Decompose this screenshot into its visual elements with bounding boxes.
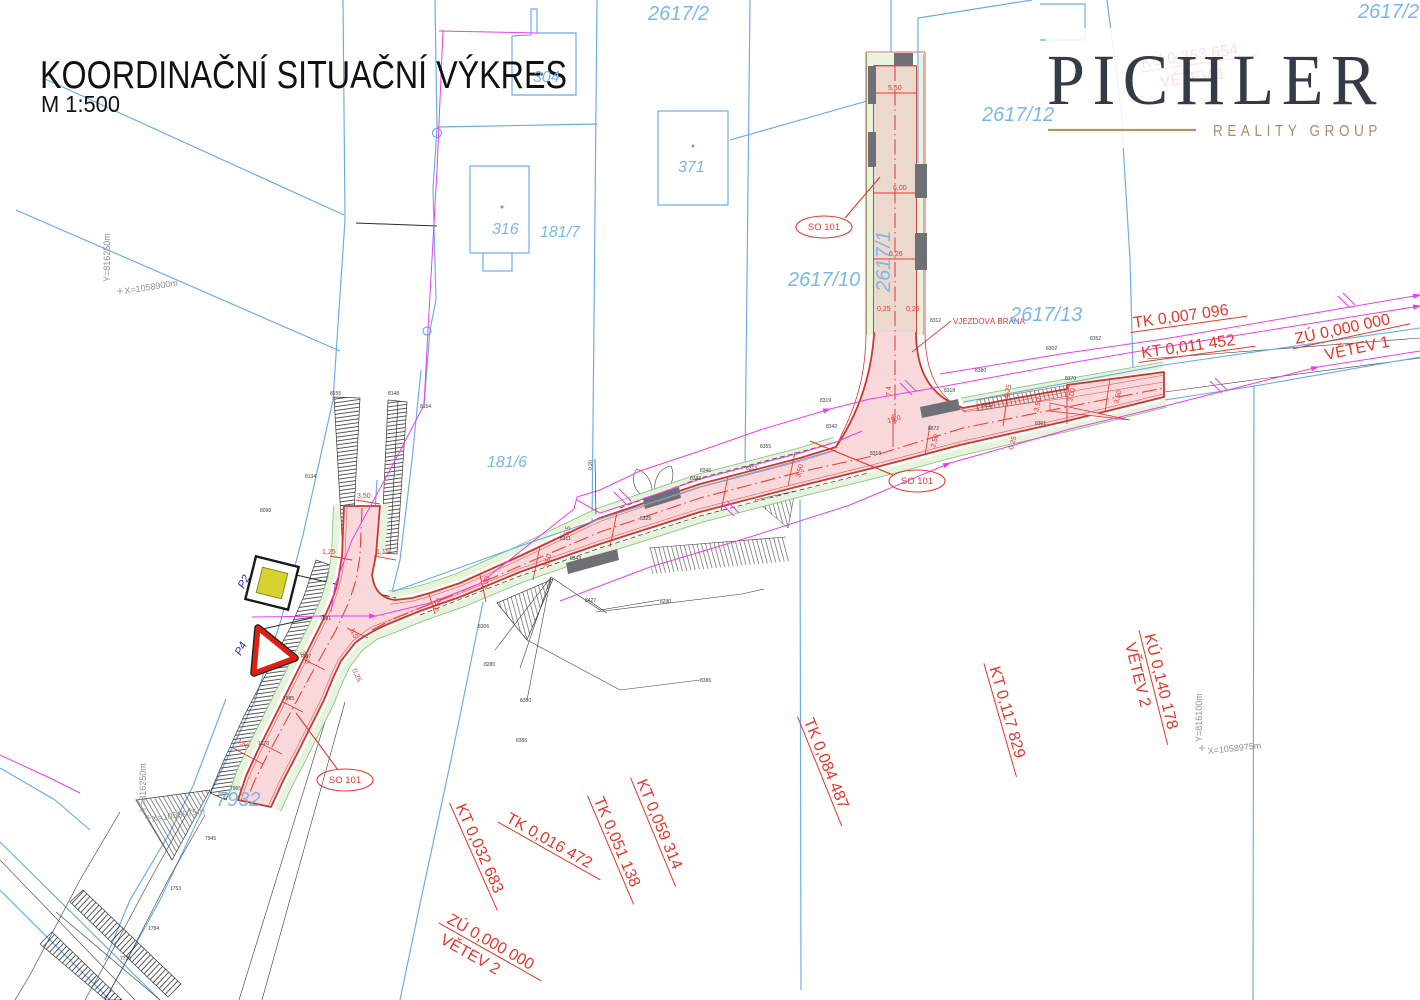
svg-text:8355: 8355	[760, 444, 771, 450]
svg-text:8380: 8380	[975, 368, 986, 374]
svg-text:8313: 8313	[746, 466, 757, 472]
svg-text:0,25: 0,25	[906, 306, 920, 313]
svg-text:181/7: 181/7	[540, 224, 581, 241]
svg-text:8386: 8386	[700, 678, 711, 684]
svg-text:8134: 8134	[305, 474, 316, 480]
svg-text:8319: 8319	[820, 398, 831, 404]
svg-text:8154: 8154	[420, 404, 431, 410]
svg-text:8386: 8386	[516, 738, 527, 744]
svg-text:8302: 8302	[1046, 346, 1057, 352]
svg-text:7965: 7965	[230, 786, 241, 792]
svg-text:8280: 8280	[484, 662, 495, 668]
svg-text:8343: 8343	[690, 476, 701, 482]
svg-text:181/6: 181/6	[487, 454, 527, 471]
svg-text:8370: 8370	[1065, 376, 1076, 382]
svg-text:PICHLER: PICHLER	[1047, 40, 1384, 120]
svg-text:316: 316	[492, 221, 519, 238]
svg-text:2617/12: 2617/12	[981, 104, 1054, 126]
svg-text:8312: 8312	[930, 318, 941, 324]
svg-text:Y=816100m: Y=816100m	[1194, 693, 1204, 742]
svg-text:7987: 7987	[300, 654, 311, 660]
svg-text:SO 101: SO 101	[901, 476, 933, 487]
svg-text:1,15: 1,15	[376, 549, 390, 556]
svg-text:Y=816250m: Y=816250m	[102, 233, 112, 282]
svg-text:6,26: 6,26	[889, 251, 903, 258]
svg-text:8252: 8252	[982, 403, 993, 409]
svg-text:2617/13: 2617/13	[1009, 304, 1082, 326]
svg-text:8352: 8352	[1090, 336, 1101, 342]
svg-text:SO 101: SO 101	[808, 222, 840, 233]
svg-text:8342: 8342	[826, 424, 837, 430]
svg-text:1,25: 1,25	[322, 549, 336, 556]
svg-text:8350: 8350	[520, 698, 531, 704]
svg-text:7945: 7945	[205, 836, 216, 842]
svg-text:8325: 8325	[640, 516, 651, 522]
svg-text:7,4: 7,4	[886, 386, 893, 396]
svg-text:8155: 8155	[330, 391, 341, 397]
svg-text:2617/10: 2617/10	[787, 269, 860, 291]
svg-text:8098: 8098	[260, 508, 271, 514]
svg-text:0,20: 0,20	[588, 460, 594, 470]
svg-text:0,25: 0,25	[877, 306, 891, 313]
svg-text:8311: 8311	[560, 536, 571, 542]
svg-text:8346: 8346	[700, 468, 711, 474]
svg-text:1770: 1770	[258, 741, 269, 747]
svg-text:8318: 8318	[944, 388, 955, 394]
svg-text:8290: 8290	[660, 599, 671, 605]
svg-text:304: 304	[533, 69, 560, 86]
svg-text:SO 101: SO 101	[329, 775, 361, 786]
svg-text:8148: 8148	[388, 391, 399, 397]
svg-text:8427: 8427	[585, 598, 596, 604]
svg-text:M 1:500: M 1:500	[41, 91, 120, 117]
svg-text:7932: 7932	[216, 789, 261, 811]
svg-text:6,00: 6,00	[893, 185, 907, 192]
svg-text:1784: 1784	[148, 926, 159, 932]
svg-text:2617/2: 2617/2	[1357, 1, 1419, 23]
svg-text:2617/1: 2617/1	[873, 231, 895, 293]
svg-text:7981: 7981	[320, 616, 331, 622]
svg-text:2617/2: 2617/2	[647, 3, 709, 25]
svg-text:7985: 7985	[283, 696, 294, 702]
svg-text:371: 371	[678, 159, 705, 176]
svg-text:8318: 8318	[870, 451, 881, 457]
svg-text:8672: 8672	[928, 426, 939, 432]
svg-text:7735: 7735	[120, 956, 131, 962]
svg-text:REALITY GROUP: REALITY GROUP	[1213, 123, 1382, 140]
svg-text:Y=816250m: Y=816250m	[138, 763, 148, 812]
svg-text:5,50: 5,50	[888, 85, 902, 92]
svg-text:8306: 8306	[478, 624, 489, 630]
svg-text:3,50: 3,50	[357, 493, 371, 500]
svg-text:8343: 8343	[570, 556, 581, 562]
svg-text:8301: 8301	[1035, 421, 1046, 427]
svg-text:1753: 1753	[170, 886, 181, 892]
